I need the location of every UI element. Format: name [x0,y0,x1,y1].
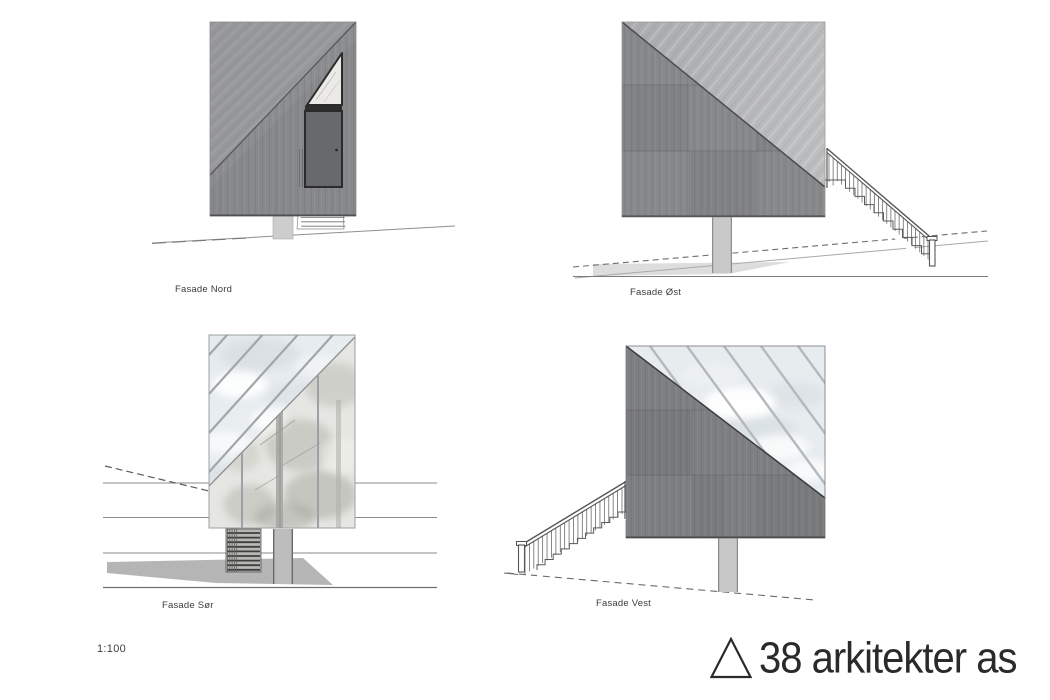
stairs-sor [226,529,261,572]
support-column-sor [273,529,293,584]
facade-sor-drawing [90,325,520,625]
logo-triangle-icon [710,636,752,680]
facade-vest-drawing [490,335,960,630]
facade-nord-drawing [100,10,470,250]
terrain-ost [573,231,988,278]
support-column-vest [718,538,738,592]
support-column-nord [273,216,293,239]
building-sor [199,325,365,531]
architect-logo: 38 arkitekter as [710,636,1016,680]
terrain-dashed-line-sor [105,466,209,491]
facade-ost-label: Fasade Øst [630,287,681,298]
logo-text: 38 arkitekter as [759,637,1016,680]
facade-sor-label: Fasade Sør [162,600,214,611]
facade-nord-label: Fasade Nord [175,284,232,295]
building-ost [622,22,825,217]
facade-ost-drawing [560,10,1000,310]
stairs-ost [825,148,937,270]
handrail-vest [522,482,626,545]
elevation-sheet: Fasade Nord Fasade Øst Fasade Sør Fasade… [0,0,1050,700]
building-shadow-sor [107,558,333,585]
support-column-ost [712,217,732,273]
stairs-vest [504,481,626,578]
building-vest [626,346,918,538]
facade-vest-label: Fasade Vest [596,598,651,609]
scale-note: 1:100 [97,643,126,655]
railing-end-post-ost [930,240,936,266]
railing-end-post-vest [519,545,525,572]
terrain-dashed-line-vest [507,573,815,600]
door-handle [335,149,338,152]
